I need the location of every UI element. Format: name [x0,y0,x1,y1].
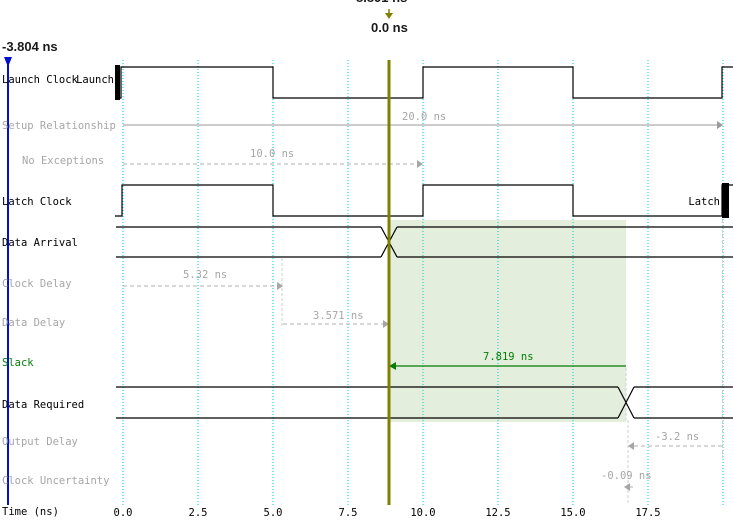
launch-edge-label: Launch [74,74,114,87]
clipped-time-label: 8.891 ns [356,0,407,4]
row-label-data-required: Data Required [2,399,84,412]
row-label-clock-delay: Clock Delay [2,278,72,291]
axis-tick: 2.5 [178,507,218,520]
cursor-down-arrow-icon [385,13,393,19]
latch-edge-label: Latch [686,196,720,209]
launch-clock-waveform [115,67,733,98]
axis-tick: 7.5 [328,507,368,520]
axis-tick: 15.0 [553,507,593,520]
axis-tick: 17.5 [628,507,668,520]
setup-relationship-value: 20.0 ns [402,111,446,124]
row-label-setup-relationship: Setup Relationship [2,120,116,133]
slack-value: 7.819 ns [483,351,534,364]
axis-tick: 0.0 [103,507,143,520]
row-label-data-delay: Data Delay [2,317,65,330]
row-label-slack: Slack [2,357,34,370]
data-delay-value: 3.571 ns [313,310,364,323]
time-gridlines [123,60,723,505]
marker-down-arrow-icon [4,57,12,67]
no-exceptions-value: 10.0 ns [250,148,294,161]
launch-edge-marker [115,65,120,100]
axis-tick: 12.5 [478,507,518,520]
clock-delay-value: 5.32 ns [183,269,227,282]
output-delay-value: -3.2 ns [655,431,699,444]
clock-uncertainty-arrow [624,483,634,491]
no-exceptions-arrow [123,160,423,168]
row-label-latch-clock: Latch Clock [2,196,72,209]
row-label-output-delay: Output Delay [2,436,78,449]
axis-tick: 10.0 [403,507,443,520]
timing-waveform-pane: 8.891 ns 0.0 ns -3.804 ns Launch Clock S… [0,0,733,531]
clock-uncertainty-value: -0.09 ns [601,470,652,483]
latch-edge-marker [722,183,729,218]
axis-title: Time (ns) [2,506,59,519]
axis-tick: 5.0 [253,507,293,520]
left-marker-time-label: -3.804 ns [2,40,58,53]
row-label-no-exceptions: No Exceptions [22,155,104,168]
row-label-clock-uncertainty: Clock Uncertainty [2,475,109,488]
slack-region [389,220,626,422]
clock-delay-arrow [123,282,283,290]
latch-clock-waveform [115,185,733,216]
cursor-time-label: 0.0 ns [371,21,408,34]
row-label-launch-clock: Launch Clock [2,74,78,87]
row-label-data-arrival: Data Arrival [2,237,78,250]
